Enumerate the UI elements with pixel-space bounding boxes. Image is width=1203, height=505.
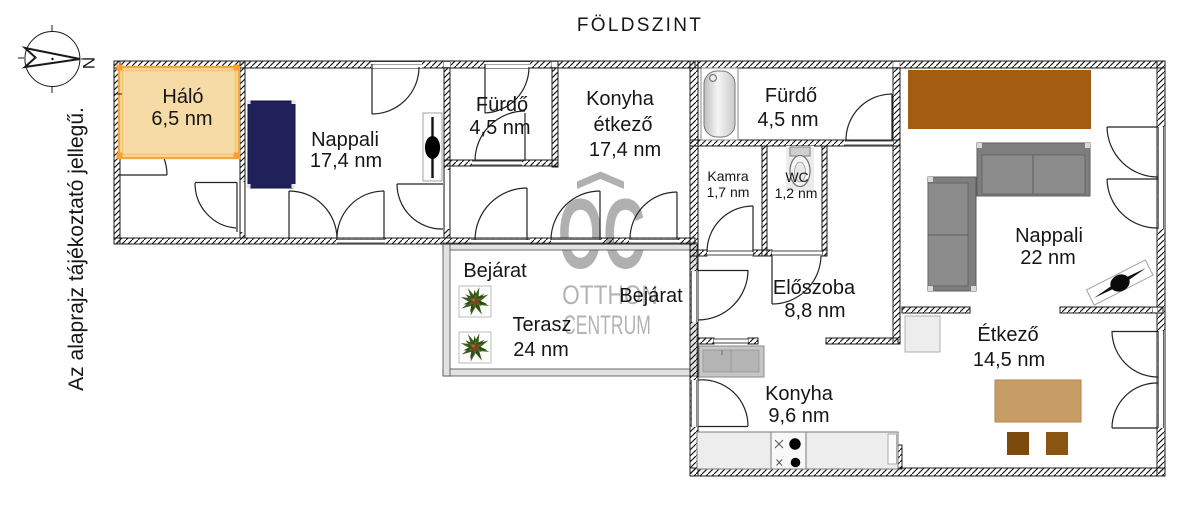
svg-text:WC: WC xyxy=(785,169,808,185)
svg-text:6,5 nm: 6,5 nm xyxy=(151,108,212,130)
svg-text:Bejárat: Bejárat xyxy=(463,260,527,282)
svg-text:4,5 nm: 4,5 nm xyxy=(469,117,530,139)
svg-text:N: N xyxy=(79,57,98,69)
svg-text:Terasz: Terasz xyxy=(513,314,572,336)
svg-text:Nappali: Nappali xyxy=(1015,225,1083,247)
svg-text:étkező: étkező xyxy=(594,114,653,136)
svg-text:Előszoba: Előszoba xyxy=(773,277,856,299)
svg-text:Konyha: Konyha xyxy=(765,383,834,405)
svg-text:9,6 nm: 9,6 nm xyxy=(768,405,829,427)
svg-text:Nappali: Nappali xyxy=(311,129,379,151)
svg-text:OC: OC xyxy=(558,179,646,290)
svg-text:14,5 nm: 14,5 nm xyxy=(973,349,1045,371)
svg-text:Fürdő: Fürdő xyxy=(765,85,817,107)
svg-text:22 nm: 22 nm xyxy=(1020,247,1076,269)
svg-text:4,5 nm: 4,5 nm xyxy=(757,109,818,131)
svg-text:8,8 nm: 8,8 nm xyxy=(784,300,845,322)
svg-text:Fürdő: Fürdő xyxy=(476,94,528,116)
svg-text:FÖLDSZINT: FÖLDSZINT xyxy=(577,15,703,36)
svg-text:Konyha: Konyha xyxy=(586,88,655,110)
svg-text:Bejárat: Bejárat xyxy=(619,285,683,307)
svg-text:Az alaprajz tájékoztató jelleg: Az alaprajz tájékoztató jellegű. xyxy=(65,107,88,391)
svg-text:17,4 nm: 17,4 nm xyxy=(310,150,382,172)
svg-text:1,2 nm: 1,2 nm xyxy=(775,185,818,201)
svg-text:24 nm: 24 nm xyxy=(513,339,569,361)
svg-text:Kamra: Kamra xyxy=(707,168,748,184)
svg-text:1,7 nm: 1,7 nm xyxy=(707,184,750,200)
svg-text:17,4 nm: 17,4 nm xyxy=(589,139,661,161)
svg-text:CENTRUM: CENTRUM xyxy=(563,309,651,340)
svg-text:Étkező: Étkező xyxy=(977,323,1038,346)
svg-text:Háló: Háló xyxy=(162,86,203,108)
